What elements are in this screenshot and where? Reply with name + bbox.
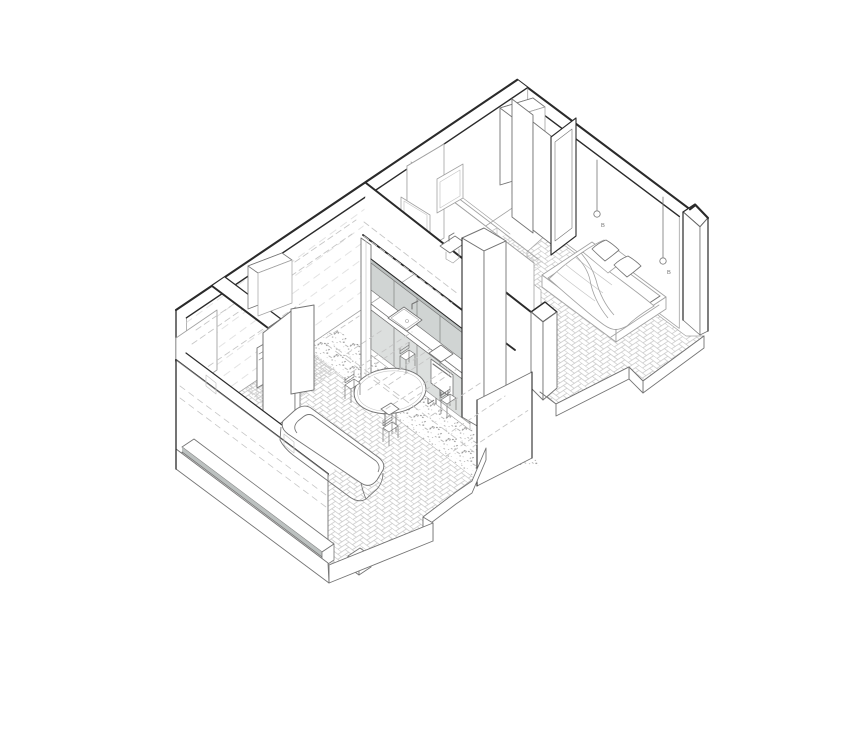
svg-text:B: B (601, 223, 605, 229)
svg-text:B: B (667, 270, 671, 276)
